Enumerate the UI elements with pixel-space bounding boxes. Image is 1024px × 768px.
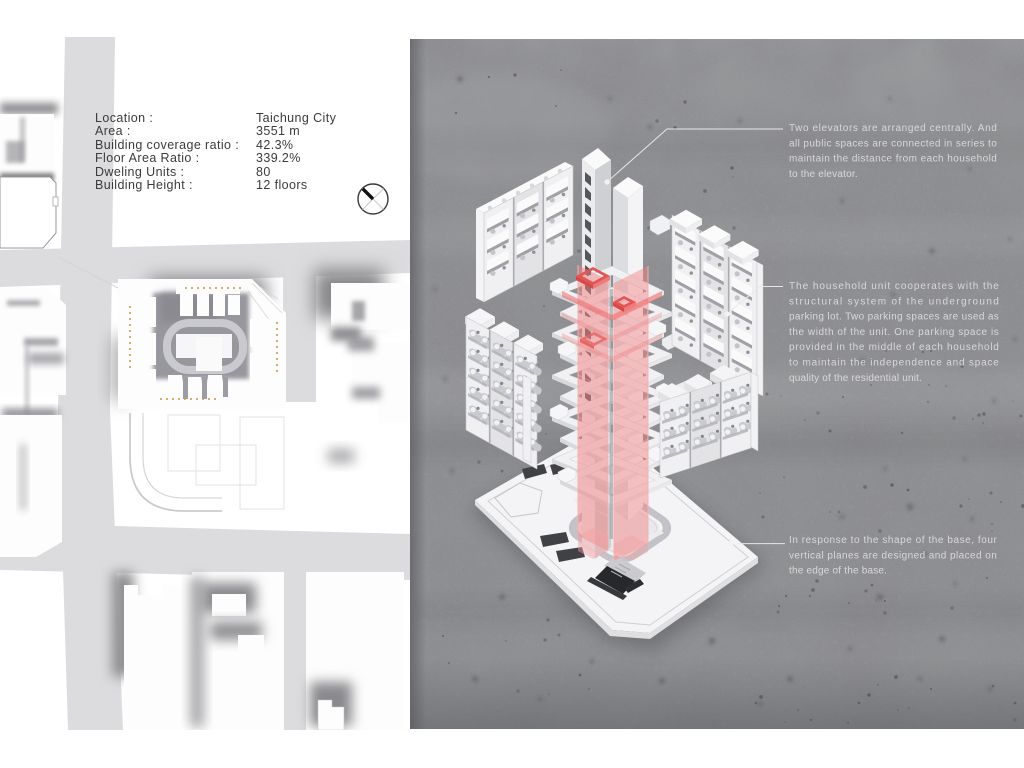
svg-text:structural system of the under: structural system of the underground	[789, 296, 999, 307]
svg-text:the edge of the base.: the edge of the base.	[789, 566, 887, 577]
svg-text:parking lot. Two parking space: parking lot. Two parking spaces are used…	[789, 312, 999, 323]
svg-text:maintain the distance from eac: maintain the distance from each househol…	[789, 154, 997, 165]
svg-text:vertical planes are designed a: vertical planes are designed and placed …	[789, 550, 997, 561]
svg-text:Two elevators are arranged cen: Two elevators are arranged centrally. An…	[789, 123, 997, 134]
svg-text:to maintain the independence a: to maintain the independence and space	[789, 358, 999, 369]
svg-text:to the elevator.: to the elevator.	[789, 169, 858, 180]
svg-text:all public spaces are connecte: all public spaces are connected in serie…	[789, 138, 997, 149]
svg-text:provided in the middle of each: provided in the middle of each household	[789, 342, 999, 353]
svg-text:The household unit cooperates: The household unit cooperates with the	[789, 281, 999, 292]
svg-text:quality of the residential uni: quality of the residential unit.	[789, 373, 922, 384]
svg-text:the width of the unit. One par: the width of the unit. One parking space…	[789, 327, 999, 338]
svg-text:In response to the shape of th: In response to the shape of the base, fo…	[789, 535, 997, 546]
